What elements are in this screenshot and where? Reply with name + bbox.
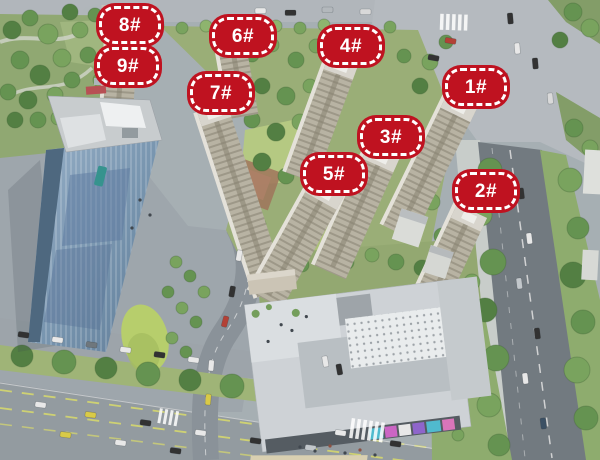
building-label-7: 7# [190, 74, 252, 112]
aerial-scene [0, 0, 600, 460]
building-label-4: 4# [320, 27, 382, 65]
building-label-8: 8# [99, 6, 161, 44]
aerial-render-image: 1# 2# 3# 4# 5# 6# 7# 8# 9# [0, 0, 600, 460]
building-label-5: 5# [303, 155, 365, 193]
building-label-3: 3# [360, 118, 422, 156]
building-label-1: 1# [445, 68, 507, 106]
building-label-6: 6# [212, 17, 274, 55]
haze-overlay [0, 0, 600, 460]
building-label-2: 2# [455, 172, 517, 210]
building-label-9: 9# [97, 47, 159, 85]
